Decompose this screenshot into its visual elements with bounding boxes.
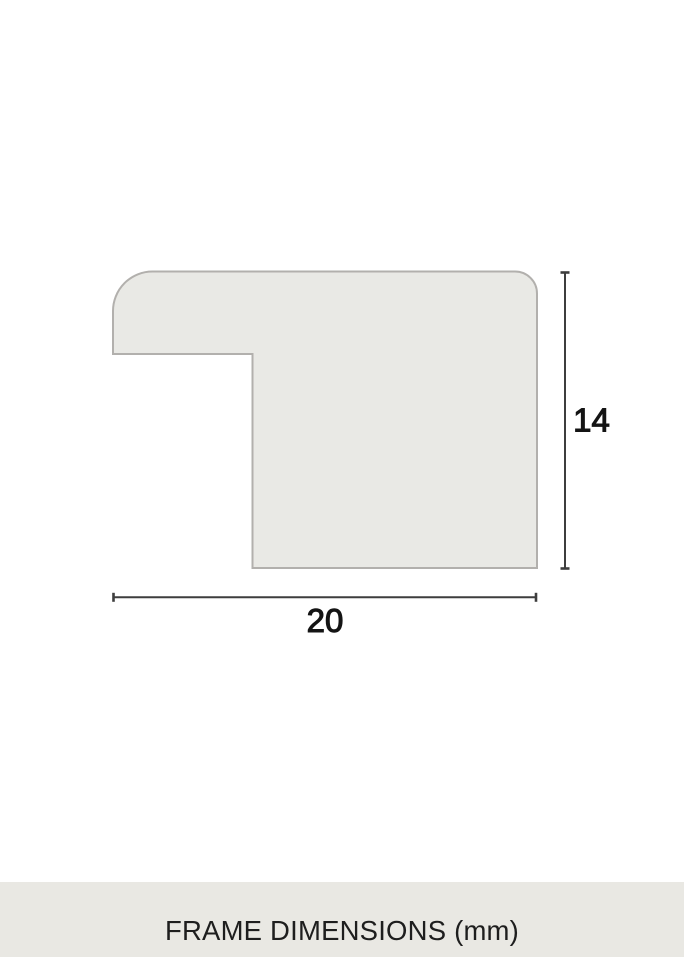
svg-text:20: 20 — [307, 602, 344, 639]
svg-text:14: 14 — [573, 402, 610, 439]
